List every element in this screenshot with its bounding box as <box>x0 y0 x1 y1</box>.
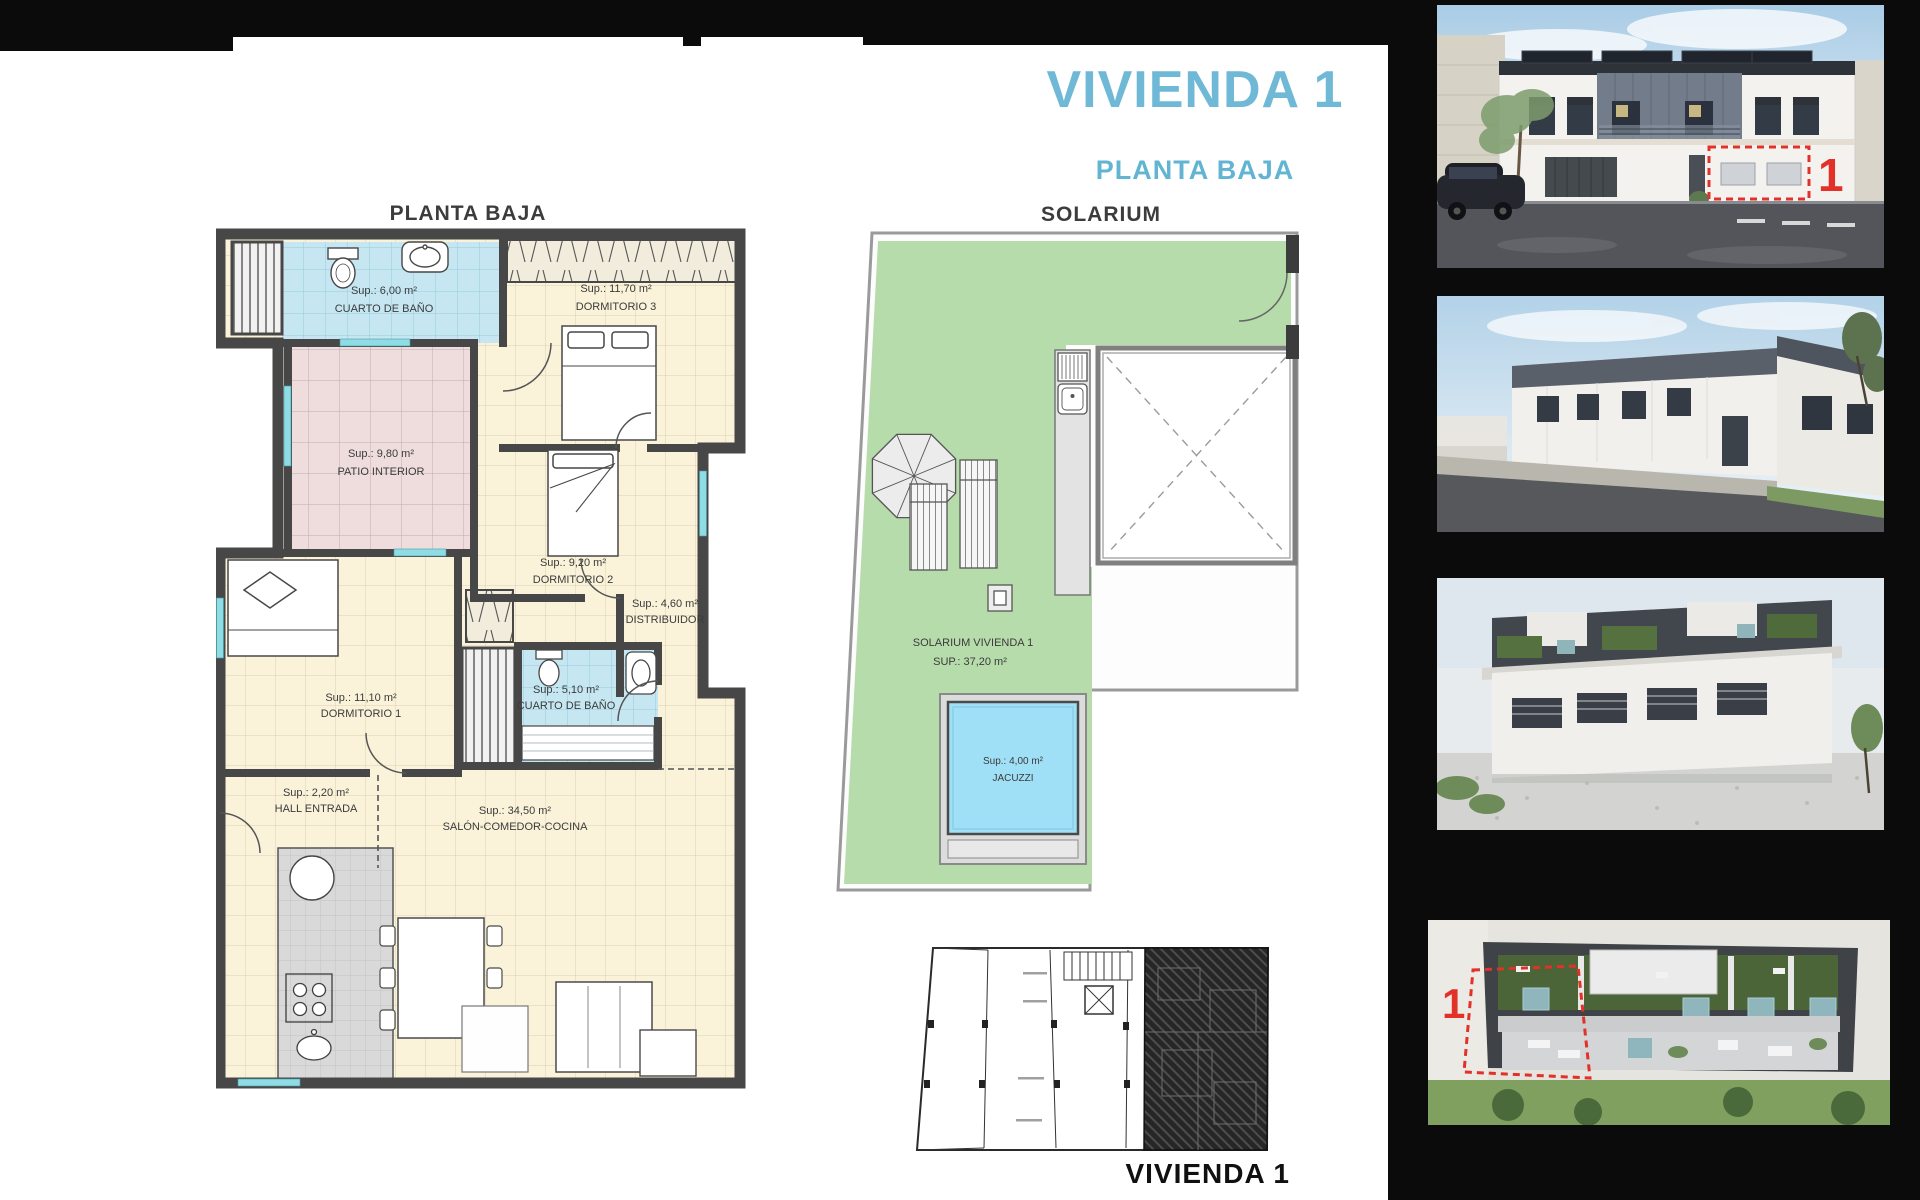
exterior-right <box>705 446 751 695</box>
room-label-name: PATIO INTERIOR <box>338 466 425 478</box>
photo-aerial-view <box>1437 578 1884 830</box>
bed-symbol-dorm3 <box>562 326 656 440</box>
sink-symbol-bath2 <box>626 652 656 694</box>
room-label-area: Sup.: 5,10 m² <box>533 684 599 696</box>
shower-symbol <box>232 242 282 334</box>
rug-symbol <box>462 1006 528 1072</box>
room-label-area: Sup.: 11,70 m² <box>580 283 652 295</box>
photo-topdown-view: 1 <box>1428 920 1890 1125</box>
room-label-name: DISTRIBUIDOR <box>626 614 705 626</box>
sink-symbol-bath1 <box>402 242 448 272</box>
solarium-title: SOLARIUM <box>1001 203 1201 227</box>
room-label-name: CUARTO DE BAÑO <box>335 302 434 315</box>
keyplan-elevator <box>1085 986 1113 1014</box>
sink-symbol-solarium <box>1058 353 1087 414</box>
keyplan-highlight-unit <box>1144 948 1268 1150</box>
bed-symbol-dorm2 <box>548 450 618 556</box>
solarium-area-label: SUP.: 37,20 m² <box>933 656 1007 668</box>
page-title: VIVIENDA 1 <box>1000 60 1390 120</box>
room-label-name: DORMITORIO 1 <box>321 708 401 720</box>
room-label-name: CUARTO DE BAÑO <box>517 699 616 712</box>
solarium-room-label: SOLARIUM VIVIENDA 1 <box>913 637 1033 649</box>
unit-marker: 1 <box>1442 980 1465 1027</box>
room-label-area: Sup.: 2,20 m² <box>283 787 349 799</box>
floorplan-title: PLANTA BAJA <box>368 202 568 226</box>
keyplan-unit-label: VIVIENDA 1 <box>1080 1158 1290 1190</box>
walkway <box>1498 1016 1840 1032</box>
photo-panel: 1 <box>1388 0 1920 1200</box>
room-label-area: Sup.: 11,10 m² <box>325 692 397 704</box>
page-subtitle: PLANTA BAJA <box>1020 155 1370 186</box>
room-label-area: Sup.: 9,80 m² <box>348 448 414 460</box>
scan-border-top-right <box>863 0 1388 45</box>
kitchen-table-symbol <box>290 856 334 900</box>
room-label-name: DORMITORIO 3 <box>576 301 656 313</box>
room-label-area: Sup.: 34,50 m² <box>479 805 551 817</box>
wardrobe-symbol-dorm1 <box>462 648 518 766</box>
room-label-name: HALL ENTRADA <box>275 803 358 815</box>
exterior-notch <box>216 345 278 551</box>
solarium-level <box>1498 950 1838 1018</box>
brochure-page: VIVIENDA 1 PLANTA BAJA PLANTA BAJA SOLAR… <box>0 0 1920 1200</box>
scan-border-notch <box>683 0 701 46</box>
stool-symbol <box>988 585 1012 611</box>
room-label-area: Sup.: 4,60 m² <box>632 598 698 610</box>
unit-marker: 1 <box>1818 149 1844 201</box>
solar-panels <box>1522 51 1812 63</box>
terrace-level <box>1502 1032 1838 1070</box>
room-label-name: DORMITORIO 2 <box>533 574 613 586</box>
photo-street-elevation: 1 <box>1437 5 1884 268</box>
keyplan-stairs <box>1064 952 1132 980</box>
jacuzzi-area-label: Sup.: 4,00 m² <box>983 756 1044 767</box>
shower-tray-bath2 <box>522 726 654 760</box>
room-label-name: SALÓN-COMEDOR-COCINA <box>443 820 589 833</box>
room-label-area: Sup.: 6,00 m² <box>351 285 417 297</box>
bed-symbol-dorm1 <box>228 560 338 656</box>
scan-border-top-left <box>0 0 233 51</box>
scan-border-top-middle <box>233 0 863 37</box>
wardrobe-symbol-dorm3 <box>507 240 738 282</box>
photo-angled-view <box>1437 296 1884 532</box>
jacuzzi-name-label: JACUZZI <box>992 773 1033 784</box>
room-label-area: Sup.: 9,20 m² <box>540 557 606 569</box>
keyplan-drawing <box>878 932 1290 1164</box>
floorplan-drawing: Sup.: 6,00 m² CUARTO DE BAÑO Sup.: 11,70… <box>216 226 751 1094</box>
solarium-drawing: SOLARIUM VIVIENDA 1 SUP.: 37,20 m² Sup.:… <box>826 226 1320 900</box>
